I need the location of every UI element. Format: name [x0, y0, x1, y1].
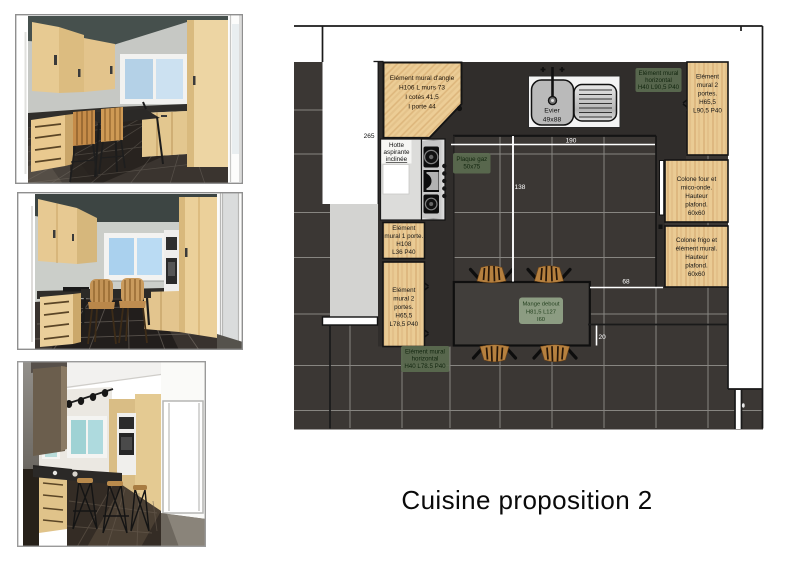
svg-text:60x60: 60x60 — [688, 210, 706, 217]
svg-text:I60: I60 — [537, 317, 545, 323]
svg-text:L90,5 P40: L90,5 P40 — [693, 108, 722, 115]
svg-text:mico-onde.: mico-onde. — [681, 185, 712, 192]
svg-text:mural 1 porte.: mural 1 porte. — [384, 233, 423, 240]
svg-text:Elément: Elément — [392, 287, 415, 294]
svg-text:plafond.: plafond. — [685, 263, 708, 270]
svg-text:Elément mural d'angle: Elément mural d'angle — [390, 75, 455, 82]
svg-text:Elément: Elément — [696, 74, 719, 81]
svg-text:H65,5: H65,5 — [395, 313, 412, 320]
svg-text:horizontal: horizontal — [412, 356, 439, 363]
svg-text:138: 138 — [515, 184, 526, 191]
svg-text:Hauteur: Hauteur — [685, 254, 707, 261]
svg-text:mural 2: mural 2 — [393, 296, 414, 303]
svg-text:Elément mural: Elément mural — [405, 349, 445, 356]
svg-text:Hauteur: Hauteur — [685, 193, 707, 200]
svg-text:Evier: Evier — [544, 108, 560, 115]
svg-text:20: 20 — [599, 334, 607, 341]
svg-text:190: 190 — [566, 138, 577, 145]
svg-text:H106 L murs 73: H106 L murs 73 — [399, 85, 445, 92]
svg-text:I porte 44: I porte 44 — [408, 104, 436, 111]
svg-text:Colone frigo et: Colone frigo et — [676, 237, 717, 244]
svg-text:H108: H108 — [396, 241, 412, 248]
svg-text:inclinée: inclinée — [386, 156, 408, 163]
svg-text:élément mural.: élément mural. — [676, 246, 718, 253]
svg-text:Elément mural: Elément mural — [639, 70, 679, 77]
svg-text:Mange debout: Mange debout — [522, 302, 559, 308]
svg-text:H40 L78.5 P40: H40 L78.5 P40 — [404, 363, 446, 370]
svg-text:H81,5 L127: H81,5 L127 — [526, 310, 556, 316]
svg-text:H65,5: H65,5 — [699, 99, 716, 106]
svg-text:horizontal: horizontal — [645, 77, 672, 84]
svg-text:68: 68 — [622, 279, 630, 286]
svg-text:aspirante: aspirante — [384, 149, 410, 156]
svg-text:L36 P40: L36 P40 — [392, 249, 416, 256]
svg-text:portes.: portes. — [394, 304, 414, 311]
svg-text:plafond.: plafond. — [685, 202, 708, 209]
svg-text:265: 265 — [364, 133, 375, 140]
svg-text:mural 2: mural 2 — [697, 82, 718, 89]
svg-text:portes.: portes. — [698, 91, 718, 98]
svg-text:Hotte: Hotte — [389, 142, 405, 149]
svg-text:Elément: Elément — [392, 225, 415, 232]
svg-text:H40 L90,5 P40: H40 L90,5 P40 — [638, 84, 680, 91]
svg-text:50x75: 50x75 — [463, 164, 480, 171]
svg-text:Plaque gaz: Plaque gaz — [456, 156, 487, 163]
svg-text:Colone four et: Colone four et — [677, 176, 717, 183]
svg-text:I cotés 41,5: I cotés 41,5 — [405, 94, 439, 101]
svg-text:49x88: 49x88 — [543, 117, 562, 124]
svg-text:L78,5 P40: L78,5 P40 — [389, 321, 418, 328]
svg-text:60x60: 60x60 — [688, 271, 706, 278]
